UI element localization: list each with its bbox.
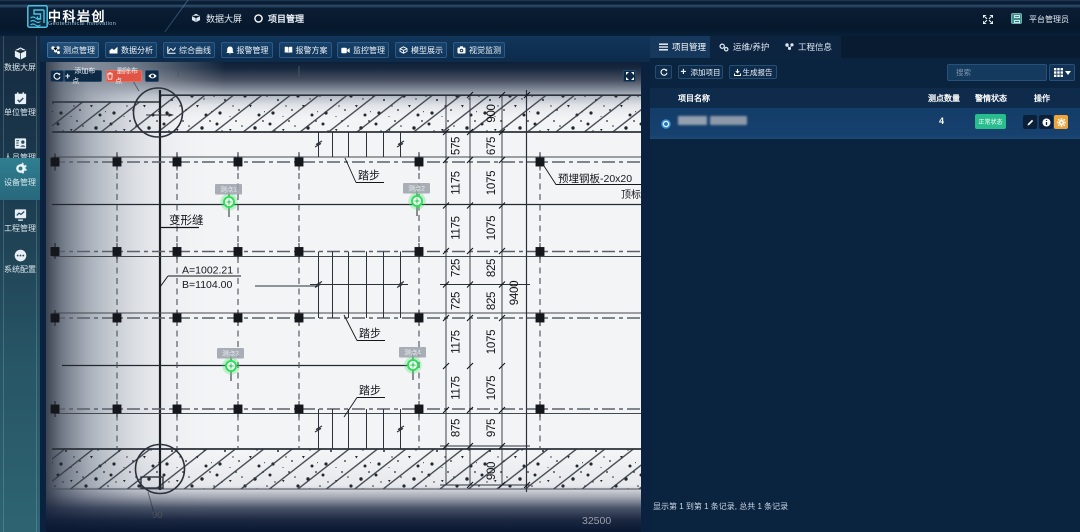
svg-text:1175: 1175 <box>451 376 463 400</box>
svg-text:675: 675 <box>486 137 498 155</box>
svg-text:踏步: 踏步 <box>359 326 381 340</box>
svg-text:1075: 1075 <box>486 171 498 195</box>
svg-text:1175: 1175 <box>451 330 463 354</box>
svg-text:725: 725 <box>451 259 463 277</box>
svg-text:踏步: 踏步 <box>359 383 381 397</box>
svg-text:B=1104.00: B=1104.00 <box>182 279 232 291</box>
svg-text:575: 575 <box>451 137 463 155</box>
svg-text:725: 725 <box>451 292 463 310</box>
svg-text:875: 875 <box>451 419 463 437</box>
svg-text:顶标: 顶标 <box>621 189 641 201</box>
svg-text:825: 825 <box>486 292 498 310</box>
svg-text:测点4: 测点4 <box>404 349 421 357</box>
svg-text:975: 975 <box>486 419 498 437</box>
svg-text:1075: 1075 <box>486 216 498 240</box>
svg-text:825: 825 <box>486 259 498 277</box>
svg-text:测点3: 测点3 <box>222 350 239 358</box>
svg-text:32500: 32500 <box>582 515 611 527</box>
svg-text:踏步: 踏步 <box>358 168 380 182</box>
svg-text:900: 900 <box>486 104 498 122</box>
svg-text:测点2: 测点2 <box>408 185 425 193</box>
svg-text:1075: 1075 <box>486 330 498 354</box>
svg-text:测点1: 测点1 <box>220 186 237 194</box>
svg-text:1175: 1175 <box>451 171 463 195</box>
svg-text:预埋钢板-20x20: 预埋钢板-20x20 <box>558 172 632 185</box>
svg-text:A=1002.21: A=1002.21 <box>182 265 233 277</box>
svg-text:1075: 1075 <box>486 376 498 400</box>
svg-text:变形缝: 变形缝 <box>169 213 204 227</box>
svg-text:90: 90 <box>152 510 163 521</box>
svg-text:9400: 9400 <box>509 281 521 305</box>
svg-text:1175: 1175 <box>451 216 463 240</box>
